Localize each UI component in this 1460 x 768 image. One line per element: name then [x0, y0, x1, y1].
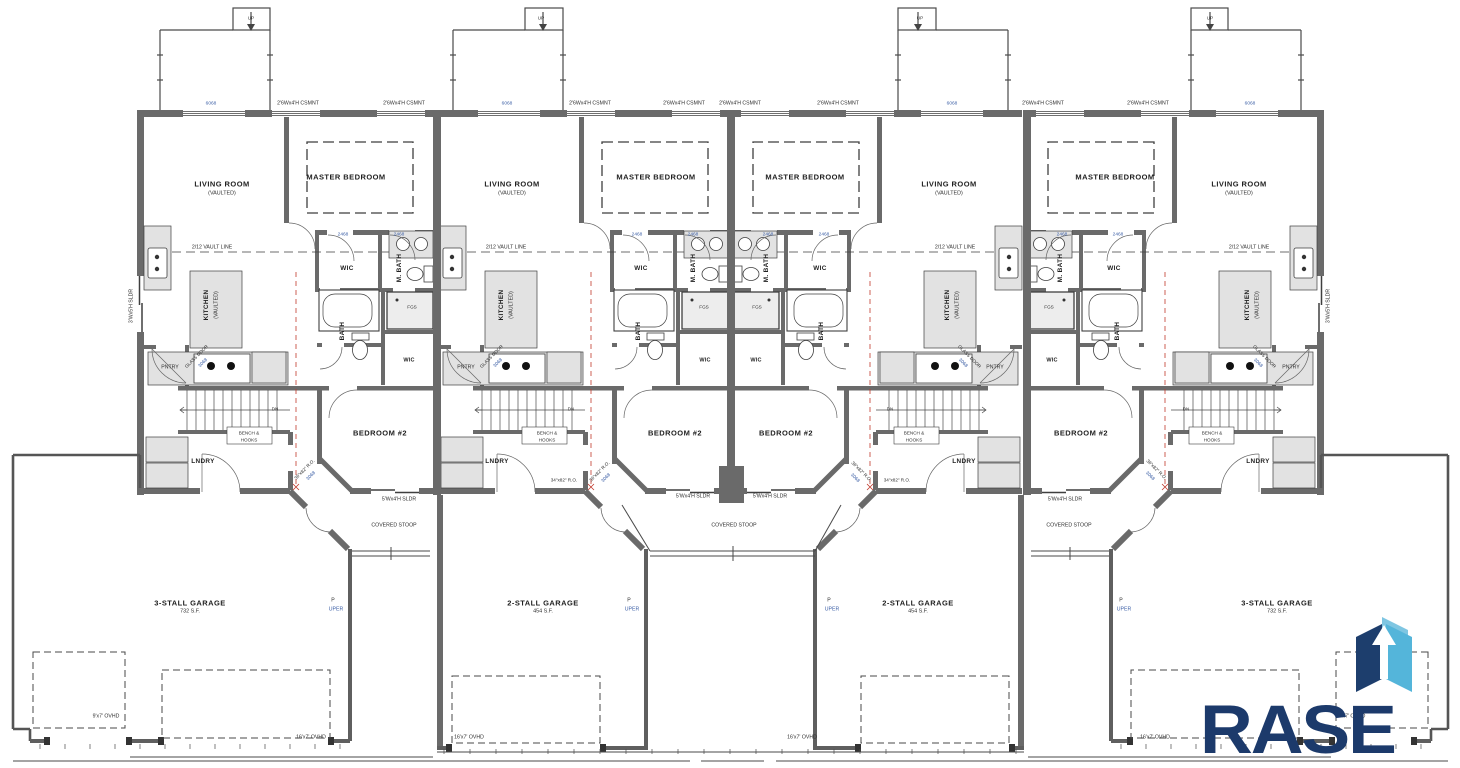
unit-4-drawing [1028, 110, 1317, 549]
unit-2-drawing [439, 110, 728, 549]
blueprint-page: 2'6Wx4'H CSMNT2'6Wx4'H CSMNT2'6Wx4'H CSM… [0, 0, 1460, 763]
rase-logo-text: RASE [1200, 700, 1395, 759]
unit-1-drawing [144, 110, 433, 549]
rase-logo: RASE [1196, 612, 1460, 763]
unit-3-drawing [733, 110, 1022, 549]
